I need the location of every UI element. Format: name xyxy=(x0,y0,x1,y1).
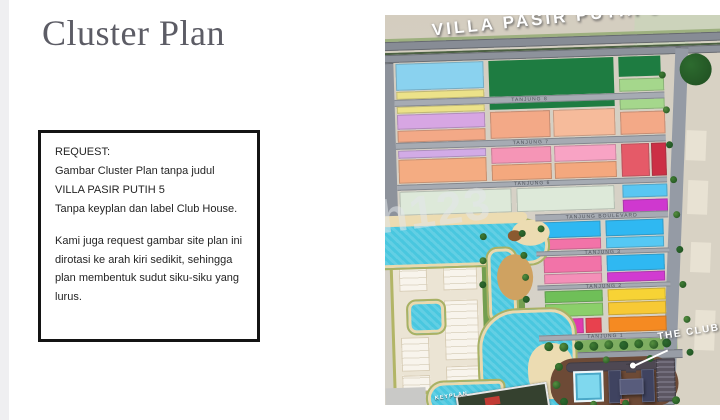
housing-block xyxy=(553,108,616,137)
housing-block xyxy=(542,221,600,239)
housing-block xyxy=(555,161,617,179)
housing-block xyxy=(621,143,650,177)
housing-block xyxy=(608,287,666,301)
street-label: TANJUNG 8 xyxy=(511,96,548,103)
tree-icon xyxy=(622,400,629,405)
housing-block xyxy=(490,110,551,139)
housing-block xyxy=(606,236,664,249)
housing-block xyxy=(620,110,666,134)
tree-icon xyxy=(590,401,597,405)
street-label: TANJUNG 2 xyxy=(586,282,623,289)
street-label: TANJUNG 6 xyxy=(514,180,551,187)
street-label: TANJUNG 3 xyxy=(585,248,622,255)
tree-icon xyxy=(663,106,670,113)
housing-block xyxy=(491,146,551,164)
request-note-box: REQUEST: Gambar Cluster Plan tanpa judul… xyxy=(38,130,260,342)
housing-block xyxy=(607,270,665,282)
request-paragraph: Kami juga request gambar site plan ini d… xyxy=(55,232,243,308)
housing-block xyxy=(608,300,666,315)
request-paragraph: Gambar Cluster Plan tanpa judul VILLA PA… xyxy=(55,162,243,200)
park xyxy=(618,56,661,77)
housing-block xyxy=(397,112,485,130)
housing-block xyxy=(651,142,667,175)
tree-icon xyxy=(659,71,666,78)
lake xyxy=(406,298,447,335)
housing-block xyxy=(543,255,601,273)
housing-block xyxy=(585,318,601,333)
page-title: Cluster Plan xyxy=(42,12,225,54)
housing-block xyxy=(622,183,667,197)
housing-block xyxy=(554,144,616,162)
paragraph-gap xyxy=(55,219,243,232)
photo-corner xyxy=(386,387,427,405)
housing-block xyxy=(395,61,484,91)
tree-icon xyxy=(523,296,530,303)
land-patch xyxy=(685,130,706,161)
club-pool xyxy=(573,370,604,402)
faded-building xyxy=(401,337,430,372)
housing-block xyxy=(605,219,663,237)
request-paragraph: Tanpa keyplan dan label Club House. xyxy=(55,200,243,219)
land-patch xyxy=(690,242,711,273)
tree-icon xyxy=(560,398,568,405)
street-label: TANJUNG 7 xyxy=(513,139,550,146)
housing-block xyxy=(606,254,664,272)
housing-block xyxy=(492,163,552,181)
left-margin-strip xyxy=(0,0,9,420)
housing-block xyxy=(608,315,666,332)
parking-lot xyxy=(656,358,676,402)
site-plan: VILLA PASIR PUTIH 5 h123 THE CLUB HOUSE … xyxy=(385,15,720,405)
land-patch xyxy=(687,180,708,215)
request-heading: REQUEST: xyxy=(55,143,243,162)
club-building xyxy=(619,378,643,395)
housing-block xyxy=(545,289,603,303)
street-label: TANJUNG 1 xyxy=(587,333,624,340)
park xyxy=(488,57,614,97)
faded-building xyxy=(444,299,480,360)
cluster-plan-image: VILLA PASIR PUTIH 5 h123 THE CLUB HOUSE … xyxy=(385,15,720,405)
housing-block xyxy=(516,185,615,212)
keyplan-highlight xyxy=(484,396,500,405)
slide-page: Cluster Plan REQUEST: Gambar Cluster Pla… xyxy=(0,0,720,420)
housing-block xyxy=(619,77,664,91)
